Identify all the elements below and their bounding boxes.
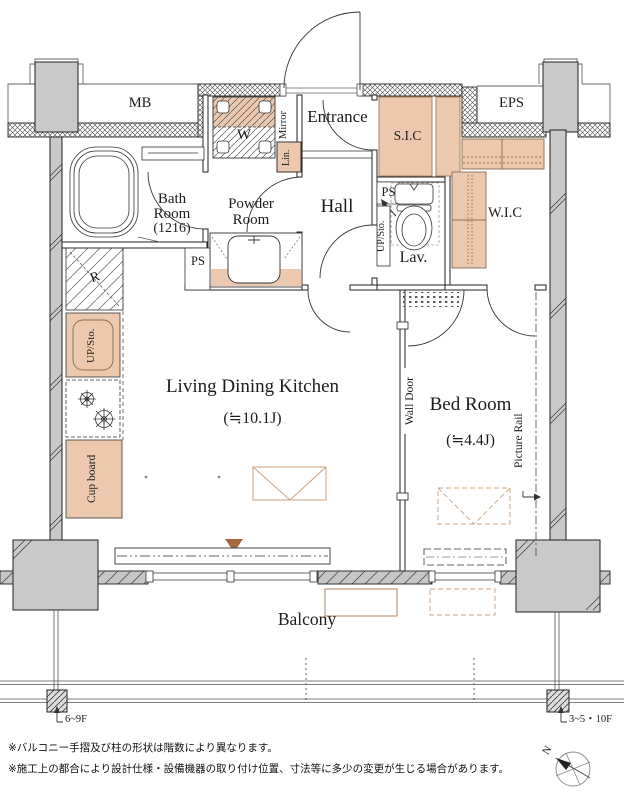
floor-range-left: 6~9F [65,714,105,725]
floor-range-right: 3~5・10F [569,714,624,725]
floor-plan: MB EPS Entrance S.I.C W.I.C Hall Lav. Ba… [0,0,624,800]
room-label-entrance: Entrance [295,108,380,126]
ps-powder-label: PS [186,255,210,268]
room-label-wic: W.I.C [479,206,531,221]
upsto-kitchen-label: UP/Sto. [86,318,98,373]
room-label-lav: Lav. [386,250,441,267]
washer-label: W [230,128,258,144]
picture-rail-label: Picture Rail [513,395,525,487]
floor-callouts [54,706,567,722]
linen-label: Lin. [282,145,293,170]
room-label-mb: MB [110,96,170,111]
upsto-lav-label: UP/Sto. [377,208,388,264]
hanger-rail [403,292,459,307]
footnote-2: ※施工上の都合により設計仕様・設備機器の取り付け位置、寸法等に多少の変更が生じる… [8,761,509,776]
compass [556,752,590,786]
cupboard-label: Cup board [86,446,98,512]
windows [115,548,506,582]
room-label-ldk: Living Dining Kitchen [135,377,370,397]
room-label-ldk-size: (≒10.1J) [135,411,370,428]
room-label-powder-2: Room [211,213,291,229]
wic-furniture [452,139,544,268]
bed-symbol [438,488,510,524]
room-label-balcony: Balcony [252,610,362,628]
footnote-1: ※バルコニー手摺及び柱の形状は階数により異なります。 [8,740,278,755]
entrance-door [280,12,363,96]
room-label-bath-3: (1216) [132,222,212,237]
entrance-step [302,151,372,158]
ps-lav-label: PS [378,186,399,199]
room-label-eps: EPS [484,96,539,111]
vanity-sink [210,233,302,287]
room-label-hall: Hall [307,197,367,217]
railing-posts [47,690,569,712]
room-label-sic: S.I.C [380,129,435,143]
ldk-symbols [145,467,326,552]
room-label-powder-1: Powder [211,197,291,213]
mirror-label: Mirror [278,98,289,152]
table-symbol [253,467,326,500]
stove [66,380,120,437]
wall-door-label: Wall Door [404,368,416,434]
